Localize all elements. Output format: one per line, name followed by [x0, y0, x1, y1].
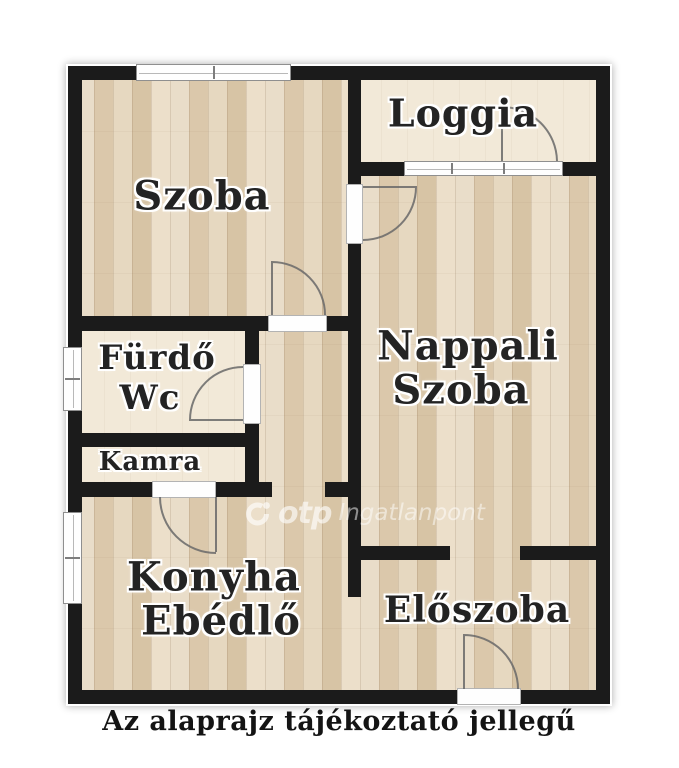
room-label-szoba: Szoba	[133, 173, 270, 220]
room-label-eloszoba: Előszoba	[384, 589, 570, 631]
room-label-wc: Wc	[120, 378, 181, 418]
room-label-konyha-2: Ebédlő	[141, 598, 301, 645]
room-label-nappali-1: Nappali	[377, 323, 559, 370]
door-swing-arcs	[0, 0, 679, 768]
room-label-konyha-1: Konyha	[127, 554, 301, 601]
watermark: otp Ingatlanpont	[244, 497, 485, 529]
watermark-name: Ingatlanpont	[338, 500, 484, 526]
door-arc-entrance	[464, 635, 518, 689]
room-label-kamra: Kamra	[99, 447, 202, 477]
room-label-loggia: Loggia	[388, 91, 538, 136]
door-arc-nappali	[363, 187, 416, 240]
room-label-nappali-2: Szoba	[392, 367, 529, 414]
door-arc-kamra	[160, 497, 216, 553]
disclaimer-caption: Az alaprajz tájékoztató jellegű	[68, 706, 610, 737]
watermark-brand: otp	[278, 496, 331, 531]
room-label-furdo: Fürdő	[98, 338, 216, 378]
floorplan-canvas: otp Ingatlanpont Szoba Loggia Fürdő Wc K…	[0, 0, 679, 768]
door-arc-szoba	[272, 262, 325, 315]
otp-logo-icon	[244, 500, 271, 527]
